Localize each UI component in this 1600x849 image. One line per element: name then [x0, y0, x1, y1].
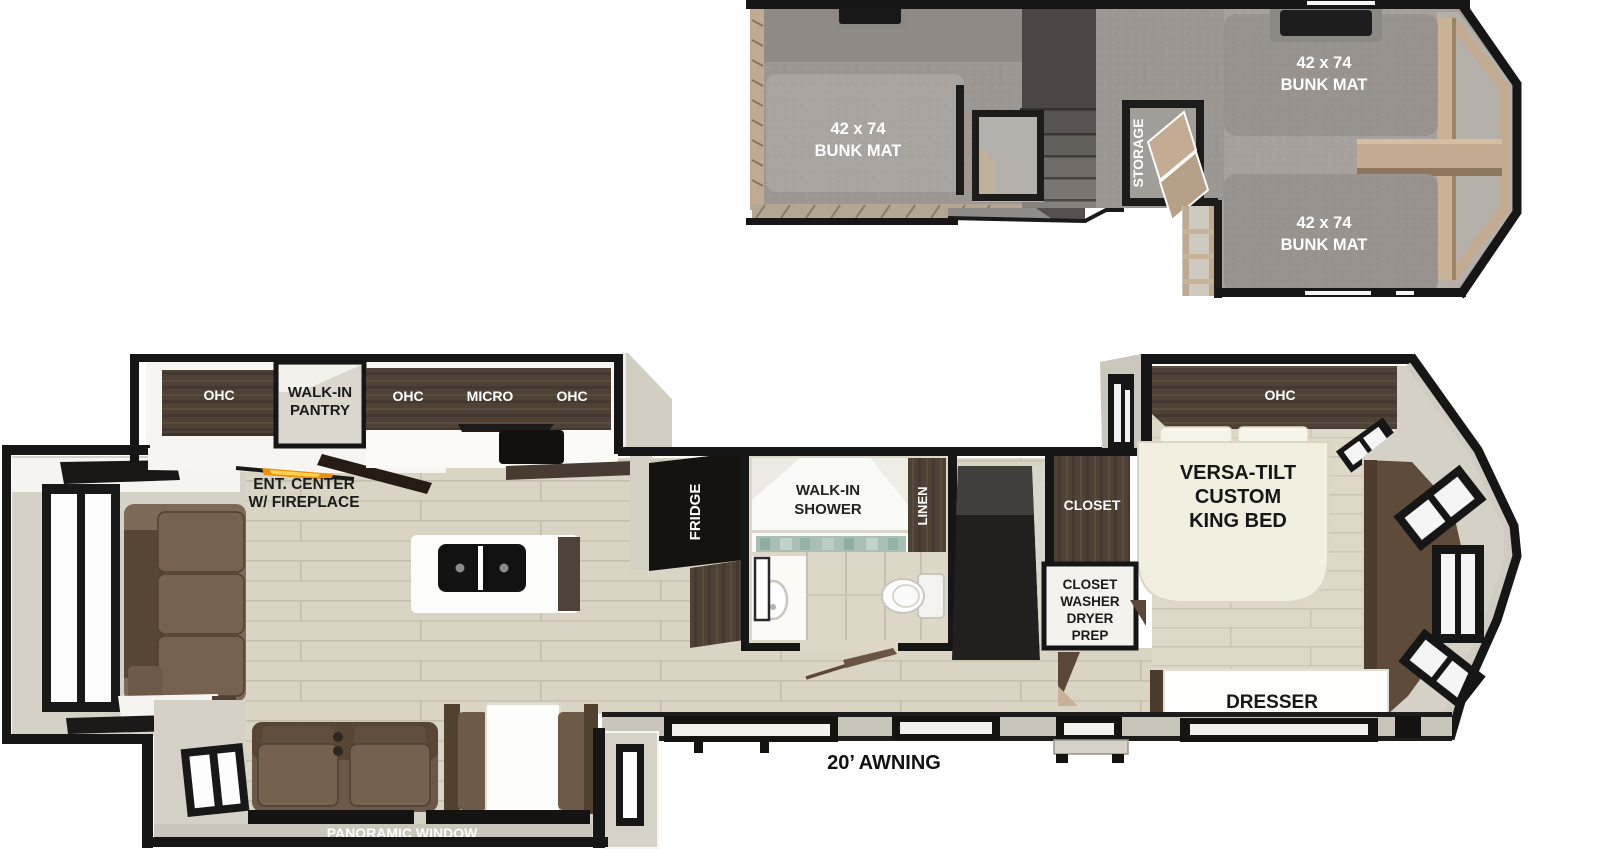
svg-text:42 x 74: 42 x 74 [1296, 214, 1352, 232]
svg-text:20’ AWNING: 20’ AWNING [827, 752, 941, 774]
svg-text:OHC: OHC [556, 388, 587, 404]
svg-text:FRIDGE: FRIDGE [687, 484, 704, 541]
svg-text:KING BED: KING BED [1189, 510, 1287, 532]
svg-text:OHC: OHC [1264, 387, 1295, 403]
svg-text:CLOSET: CLOSET [1064, 497, 1121, 513]
svg-text:CLOSET: CLOSET [1063, 577, 1119, 592]
svg-text:OHC: OHC [392, 388, 423, 404]
svg-text:PANTRY: PANTRY [290, 402, 350, 419]
svg-text:42 x 74: 42 x 74 [1296, 54, 1352, 72]
svg-text:WASHER: WASHER [1060, 594, 1120, 609]
svg-text:42 x 74: 42 x 74 [830, 120, 886, 138]
svg-text:STORAGE: STORAGE [1130, 119, 1146, 188]
svg-text:BUNK MAT: BUNK MAT [815, 142, 902, 160]
svg-text:CUSTOM: CUSTOM [1195, 486, 1281, 508]
svg-text:VERSA-TILT: VERSA-TILT [1180, 462, 1296, 484]
svg-text:WALK-IN: WALK-IN [796, 482, 860, 499]
svg-text:OHC: OHC [203, 387, 234, 403]
svg-text:DRESSER: DRESSER [1226, 692, 1318, 713]
svg-text:SHOWER: SHOWER [794, 501, 862, 518]
svg-text:LINEN: LINEN [915, 487, 930, 526]
svg-text:BUNK MAT: BUNK MAT [1281, 236, 1368, 254]
svg-text:WALK-IN: WALK-IN [288, 384, 352, 401]
svg-text:ENT. CENTER: ENT. CENTER [253, 476, 355, 493]
svg-text:PREP: PREP [1072, 628, 1109, 643]
svg-text:DRYER: DRYER [1067, 611, 1114, 626]
svg-text:MICRO: MICRO [467, 388, 514, 404]
svg-text:W/ FIREPLACE: W/ FIREPLACE [248, 494, 359, 511]
svg-text:BUNK MAT: BUNK MAT [1281, 76, 1368, 94]
